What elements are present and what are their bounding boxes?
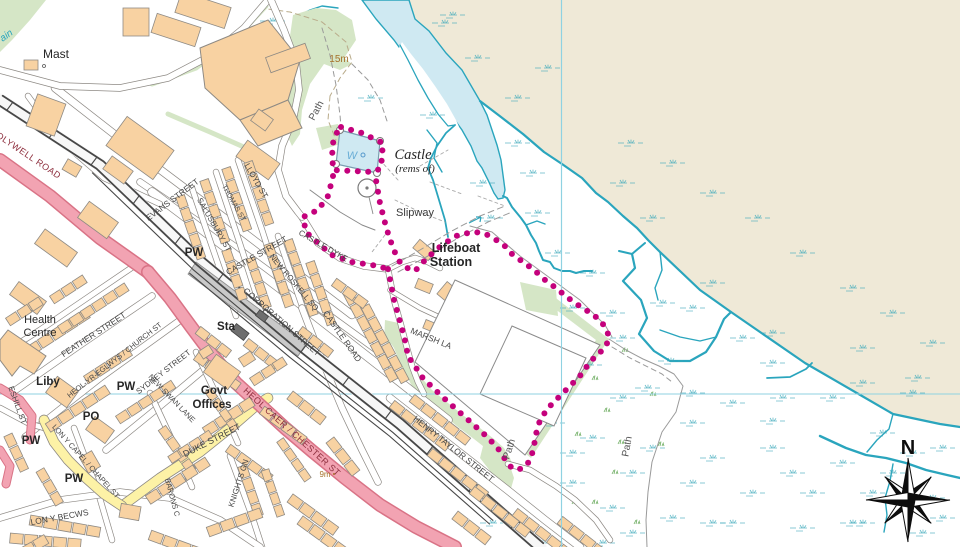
- svg-text:Offices: Offices: [193, 399, 232, 411]
- svg-text:PW: PW: [65, 473, 84, 485]
- svg-text:Lifeboat: Lifeboat: [432, 241, 481, 255]
- svg-text:Mast: Mast: [43, 47, 70, 61]
- svg-text:(rems of): (rems of): [395, 163, 435, 175]
- svg-text:Slipway: Slipway: [396, 207, 434, 219]
- svg-text:Govt: Govt: [201, 385, 227, 397]
- svg-text:W: W: [347, 150, 359, 162]
- svg-text:Liby: Liby: [36, 376, 60, 388]
- svg-text:Sta: Sta: [217, 321, 236, 333]
- svg-text:PW: PW: [117, 381, 136, 393]
- svg-text:N: N: [901, 437, 915, 459]
- svg-text:Castle: Castle: [394, 147, 432, 163]
- svg-text:PW: PW: [22, 435, 41, 447]
- svg-text:Health: Health: [24, 314, 56, 326]
- svg-text:PW: PW: [185, 247, 204, 259]
- svg-text:PO: PO: [83, 411, 100, 423]
- svg-text:15m: 15m: [329, 54, 348, 65]
- svg-text:Centre: Centre: [23, 327, 56, 339]
- svg-text:Station: Station: [430, 255, 472, 269]
